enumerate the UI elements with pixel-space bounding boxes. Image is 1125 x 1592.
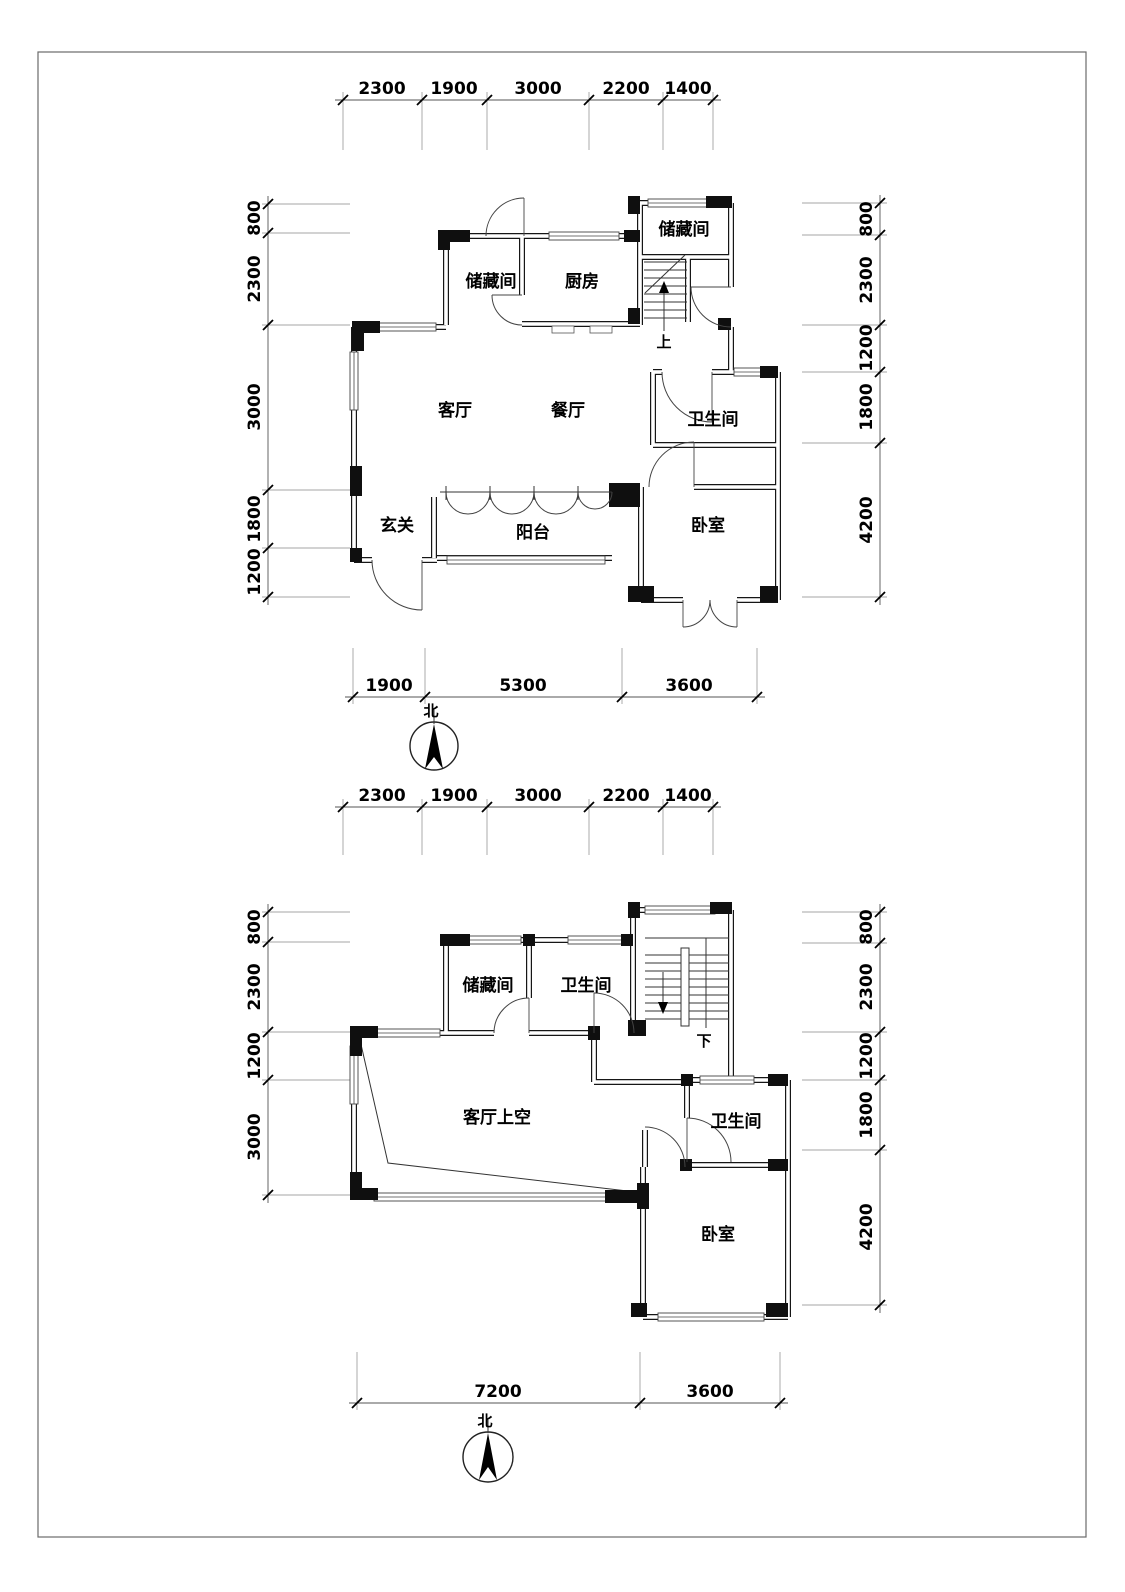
f1-dim-right-4: 1800 xyxy=(857,383,877,430)
f2-dim-top-1: 2300 xyxy=(358,786,405,806)
f1-dim-right-3: 1200 xyxy=(857,324,877,371)
f2-dim-top-4: 2200 xyxy=(602,786,649,806)
f1-stair-direction-label: 上 xyxy=(656,333,671,351)
f2-dim-left-3: 1200 xyxy=(245,1032,265,1079)
f2-dim-top-5: 1400 xyxy=(664,786,711,806)
floor2-plan: 2300 1900 3000 2200 1400 7200 3600 800 2… xyxy=(245,786,887,1482)
f1-dim-left-4: 1800 xyxy=(245,495,265,542)
f2-room-bath-top: 卫生间 xyxy=(561,975,612,996)
f1-room-foyer: 玄关 xyxy=(380,515,414,536)
f1-room-bedroom: 卧室 xyxy=(691,515,725,536)
f2-dim-right-3: 1200 xyxy=(857,1032,877,1079)
f1-room-kitchen: 厨房 xyxy=(565,271,599,292)
f2-dim-top-3: 3000 xyxy=(514,786,561,806)
f2-north-label: 北 xyxy=(477,1412,492,1430)
f1-room-labels: 储藏间 厨房 储藏间 客厅 餐厅 卫生间 玄关 阳台 卧室 xyxy=(380,219,739,543)
f1-dim-top-1: 2300 xyxy=(358,79,405,99)
f2-windows xyxy=(350,906,764,1321)
drawing-frame xyxy=(38,52,1086,1537)
f2-dim-right-4: 1800 xyxy=(857,1091,877,1138)
f2-room-living-void: 客厅上空 xyxy=(462,1107,531,1128)
f1-dim-bottom-2: 5300 xyxy=(499,676,546,696)
north-needle-icon xyxy=(425,724,443,769)
f2-stairs: 下 xyxy=(645,938,729,1050)
f2-dim-top-2: 1900 xyxy=(430,786,477,806)
f1-dim-right-2: 2300 xyxy=(857,256,877,303)
f1-room-bath: 卫生间 xyxy=(688,409,739,430)
f1-dim-right-5: 4200 xyxy=(857,496,877,543)
f2-dim-left-1: 800 xyxy=(245,909,265,945)
f2-room-bath-right: 卫生间 xyxy=(711,1111,762,1132)
f1-dim-left-2: 2300 xyxy=(245,255,265,302)
f1-dim-left-5: 1200 xyxy=(245,548,265,595)
f2-dim-right-5: 4200 xyxy=(857,1203,877,1250)
f2-dim-right-1: 800 xyxy=(857,909,877,945)
f2-room-bedroom: 卧室 xyxy=(701,1224,735,1245)
north-needle-icon xyxy=(479,1433,497,1480)
floor1-plan: 2300 1900 3000 2200 1400 1900 5300 3600 … xyxy=(245,79,887,770)
f1-dim-bottom-3: 3600 xyxy=(665,676,712,696)
f1-north-label: 北 xyxy=(423,702,438,720)
f2-dim-bottom-2: 3600 xyxy=(686,1382,733,1402)
f1-room-storage-ne: 储藏间 xyxy=(659,219,710,240)
f1-dim-top-3: 3000 xyxy=(514,79,561,99)
f2-dim-left-4: 3000 xyxy=(245,1113,265,1160)
f1-room-dining: 餐厅 xyxy=(551,400,585,421)
f2-dim-right-2: 2300 xyxy=(857,963,877,1010)
f1-dim-top-5: 1400 xyxy=(664,79,711,99)
floorplan-drawing: 2300 1900 3000 2200 1400 1900 5300 3600 … xyxy=(0,0,1125,1592)
f1-stairs: 上 xyxy=(644,255,687,351)
f1-dim-right-1: 800 xyxy=(857,201,877,237)
f1-room-living: 客厅 xyxy=(437,400,472,421)
f1-dim-bottom-1: 1900 xyxy=(365,676,412,696)
f1-north-arrow: 北 xyxy=(410,702,458,770)
f1-dimension-chains: 2300 1900 3000 2200 1400 1900 5300 3600 … xyxy=(245,79,887,704)
drawing-page: 2300 1900 3000 2200 1400 1900 5300 3600 … xyxy=(0,0,1125,1592)
f1-dim-top-2: 1900 xyxy=(430,79,477,99)
f2-dim-bottom-1: 7200 xyxy=(474,1382,521,1402)
f2-room-labels: 储藏间 卫生间 客厅上空 卫生间 卧室 xyxy=(462,975,762,1245)
f2-columns xyxy=(350,902,788,1317)
f1-dim-left-1: 800 xyxy=(245,200,265,236)
f1-room-balcony: 阳台 xyxy=(516,522,550,543)
f1-room-storage-nw: 储藏间 xyxy=(466,271,517,292)
f2-dim-left-2: 2300 xyxy=(245,963,265,1010)
f1-dim-top-4: 2200 xyxy=(602,79,649,99)
f2-stair-direction-label: 下 xyxy=(696,1032,711,1050)
f1-windows xyxy=(350,199,774,564)
f1-dim-left-3: 3000 xyxy=(245,383,265,430)
f2-north-arrow: 北 xyxy=(463,1412,513,1482)
f2-room-storage: 储藏间 xyxy=(463,975,514,996)
